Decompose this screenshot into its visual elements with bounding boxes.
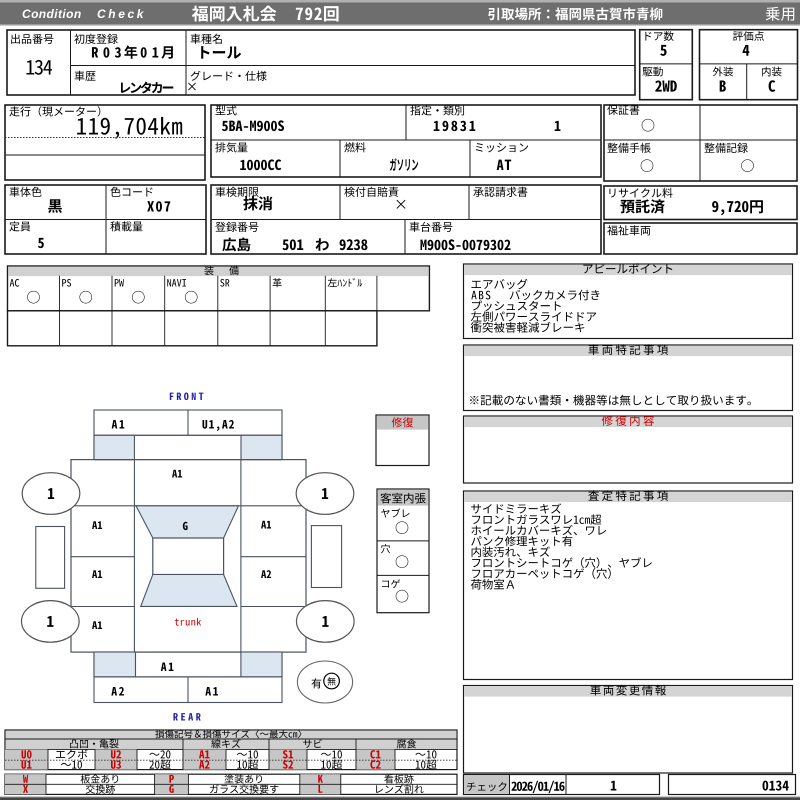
svg-text:Check: Check	[97, 7, 146, 21]
svg-text:Condition: Condition	[22, 7, 82, 21]
